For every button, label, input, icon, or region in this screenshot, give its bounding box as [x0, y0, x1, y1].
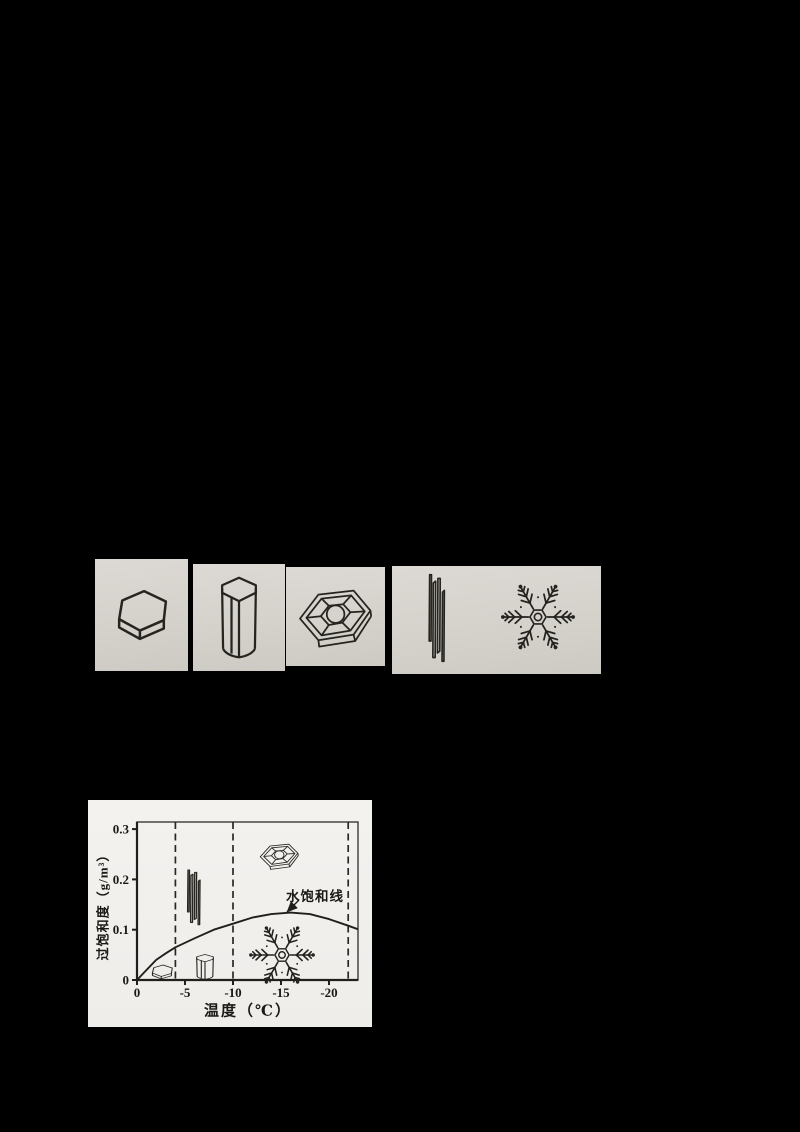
- x-tick-label: -5: [180, 985, 191, 1000]
- needle-crystals-icon: [188, 870, 200, 925]
- x-axis-label: 温度（℃）: [204, 1000, 292, 1021]
- y-tick-label: 0.3: [113, 822, 130, 837]
- hexagonal-plate-icon: [113, 588, 171, 642]
- panel-hexagonal-column: [193, 564, 285, 671]
- panel-hexagonal-plate: [95, 559, 188, 671]
- chart-axes-and-curve: 0-5-10-15-2000.10.20.3: [113, 822, 358, 1000]
- saturation-chart: 0-5-10-15-2000.10.20.3 过饱和度（g/m³） 温度（℃） …: [88, 800, 372, 1027]
- water-saturation-line-label: 水饱和线: [286, 885, 344, 905]
- x-tick-label: 0: [134, 985, 141, 1000]
- y-axis-label: 过饱和度（g/m³）: [93, 848, 112, 961]
- panel-needles-and-dendrite: [392, 566, 601, 674]
- scanned-page: 0-5-10-15-2000.10.20.3 过饱和度（g/m³） 温度（℃） …: [0, 0, 800, 1132]
- dendrite-crystal-icon: [249, 924, 315, 986]
- x-tick-label: -10: [224, 985, 241, 1000]
- needle-crystals-icon: [424, 572, 450, 664]
- x-tick-label: -15: [272, 985, 290, 1000]
- y-tick-label: 0.1: [113, 922, 129, 937]
- y-tick-label: 0: [123, 973, 130, 988]
- chart-canvas: 0-5-10-15-2000.10.20.3: [88, 800, 372, 1027]
- x-tick-label: -20: [320, 985, 337, 1000]
- plate-crystal-icon: [152, 965, 172, 979]
- column-crystal-icon: [197, 954, 214, 979]
- sector-plate-icon: [296, 578, 376, 656]
- y-tick-label: 0.2: [113, 872, 129, 887]
- panel-sector-plate: [286, 567, 385, 666]
- sector-plate-crystal-icon: [260, 844, 298, 869]
- water-saturation-curve: [137, 913, 358, 980]
- hexagonal-column-icon: [215, 574, 263, 662]
- dendrite-snowflake-icon: [500, 579, 576, 655]
